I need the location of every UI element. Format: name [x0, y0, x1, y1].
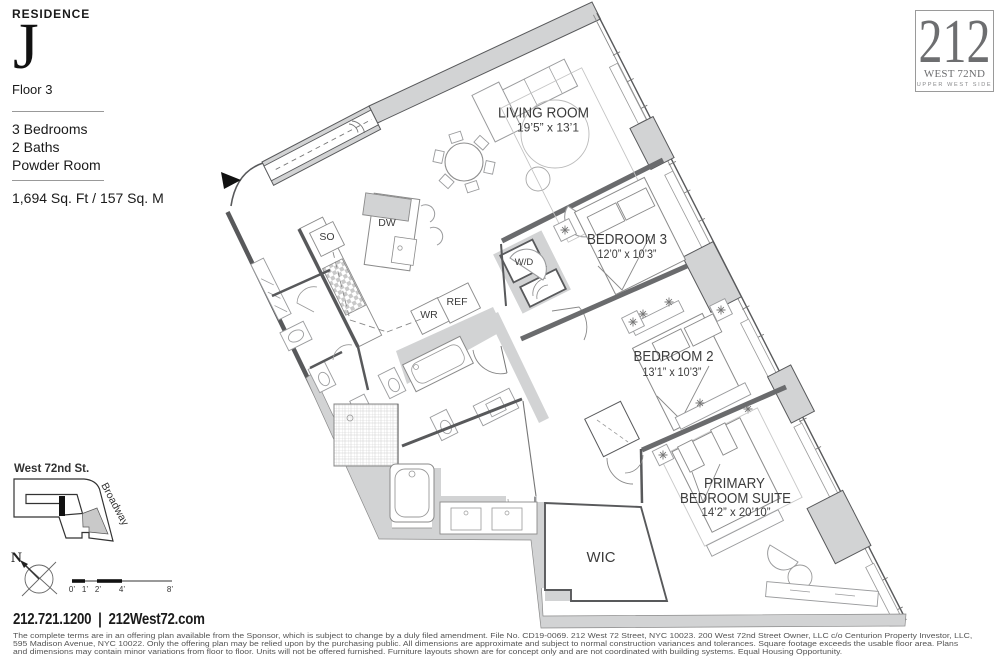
- svg-text:WIC: WIC: [587, 549, 616, 566]
- svg-text:13’1” x 10’3”: 13’1” x 10’3”: [643, 367, 702, 379]
- svg-text:14’2” x 20’10”: 14’2” x 20’10”: [702, 505, 771, 519]
- svg-text:N: N: [11, 550, 22, 566]
- svg-text:LIVING ROOM: LIVING ROOM: [498, 105, 589, 122]
- svg-text:4’: 4’: [119, 585, 125, 594]
- svg-text:8’: 8’: [167, 585, 173, 594]
- svg-text:WR: WR: [420, 309, 438, 321]
- svg-text:12’0” x 10’3”: 12’0” x 10’3”: [598, 249, 657, 261]
- svg-text:BEDROOM 2: BEDROOM 2: [634, 349, 714, 365]
- svg-text:DW: DW: [378, 217, 396, 229]
- svg-text:BEDROOM 3: BEDROOM 3: [587, 232, 667, 248]
- svg-text:19’5” x 13’1: 19’5” x 13’1: [517, 123, 579, 135]
- svg-text:0’: 0’: [69, 585, 75, 594]
- svg-text:1’: 1’: [82, 585, 88, 594]
- svg-text:2’: 2’: [95, 585, 101, 594]
- svg-text:West 72nd St.: West 72nd St.: [14, 463, 89, 475]
- svg-text:REF: REF: [447, 296, 468, 308]
- svg-text:SO: SO: [319, 231, 334, 243]
- svg-text:W/D: W/D: [515, 257, 534, 268]
